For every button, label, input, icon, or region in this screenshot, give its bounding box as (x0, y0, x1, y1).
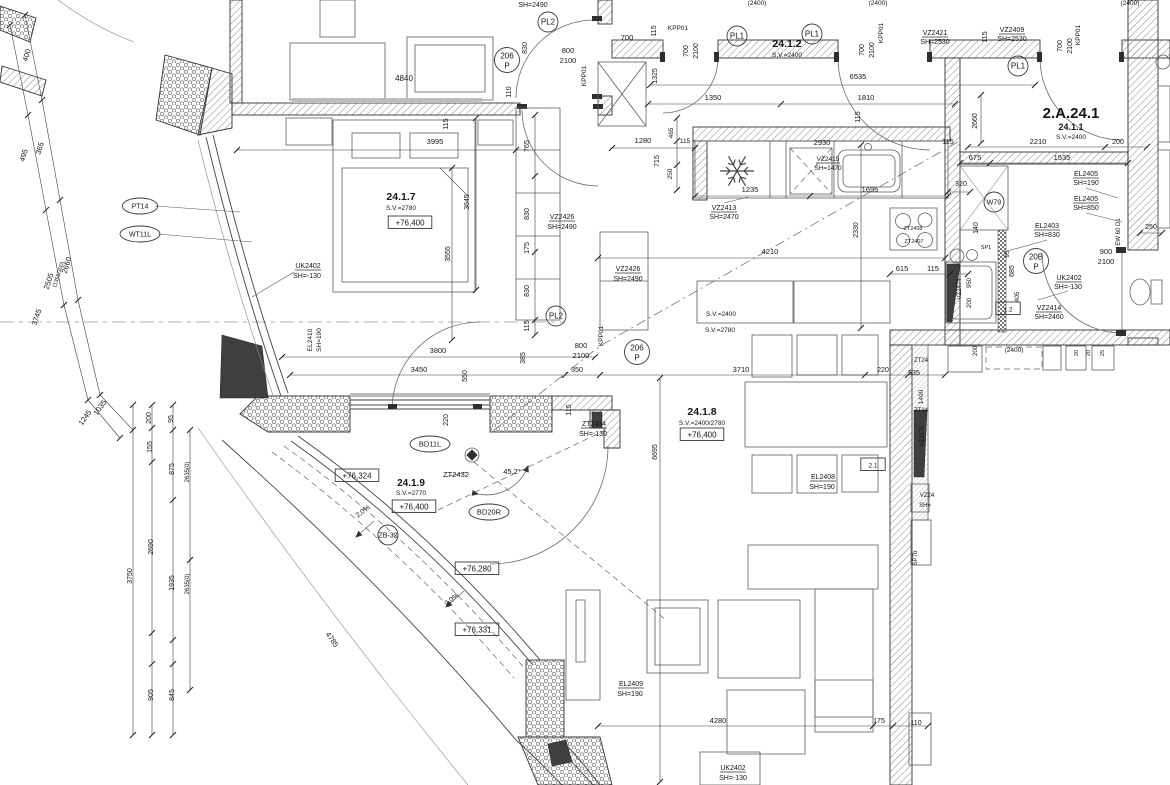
svg-text:PL2: PL2 (541, 18, 556, 27)
tag-label: KPP01 (598, 326, 605, 347)
svg-text:UK2402: UK2402 (1056, 275, 1081, 282)
tag-label: SH=2490 (547, 224, 576, 231)
tag-label: SH=-130 (719, 775, 747, 782)
tag-label: PL2 (538, 12, 558, 32)
svg-text:155: 155 (147, 441, 154, 453)
svg-text:385: 385 (520, 352, 527, 364)
svg-text:VZ2476: VZ2476 (920, 425, 926, 447)
tag-label: EL2408 (810, 474, 836, 481)
level-label: +76,400 (392, 500, 436, 513)
dim-label: 2100 (869, 42, 876, 58)
svg-text:2100: 2100 (869, 42, 876, 58)
dim-label: 115 (680, 138, 691, 145)
svg-text:PL1: PL1 (730, 32, 745, 41)
svg-text:ZT2434: ZT2434 (582, 421, 606, 428)
svg-text:206: 206 (630, 344, 644, 353)
dim-label: 2930 (814, 138, 831, 147)
dim-label: 1935 (169, 575, 176, 591)
svg-text:VZ2415: VZ2415 (817, 156, 840, 163)
svg-text:W79: W79 (987, 200, 1002, 207)
dim-label: 675 (969, 153, 982, 162)
svg-text:875: 875 (169, 463, 176, 475)
svg-text:+76,400: +76,400 (399, 503, 429, 512)
svg-text:S.V.=2400: S.V.=2400 (1056, 134, 1086, 141)
svg-text:2,0%: 2,0% (355, 504, 372, 519)
dim-label: 2100 (560, 56, 577, 65)
dim-label: 2100 (1067, 38, 1074, 54)
tag-label: 206P (495, 48, 520, 73)
svg-text:3745: 3745 (30, 308, 44, 327)
svg-text:EL2403: EL2403 (1035, 223, 1059, 230)
tag-label: 20BP (1024, 249, 1049, 274)
tag-label: VZ2476 (920, 425, 926, 447)
dim-label: 115 (524, 320, 531, 331)
dim-label: 220 (877, 367, 889, 374)
dim-label: 3745 (30, 308, 44, 327)
tag-label: SH=830 (1034, 232, 1060, 239)
dim-label: 2100 (693, 43, 700, 59)
svg-text:SH=2490: SH=2490 (613, 276, 642, 283)
dim-label: 715 (654, 155, 661, 167)
dim-label: 465 (668, 127, 675, 138)
tag-label: ZT2408 (904, 226, 923, 232)
svg-text:3995: 3995 (427, 137, 444, 146)
dim-label: 4840 (395, 74, 413, 83)
level-label: +76,331 (455, 623, 499, 636)
doors (388, 16, 1126, 564)
dim-label: 2660 (972, 113, 979, 129)
dining-table-icon (745, 335, 887, 493)
sv-label: S.V.=2780 (705, 327, 735, 334)
tag-label: UK2402 (1056, 275, 1082, 282)
level-label: +76,400 (680, 428, 724, 441)
svg-text:400: 400 (20, 48, 32, 63)
dim-label: 175 (873, 718, 885, 725)
dim-label: 700 (621, 33, 634, 42)
tv-bench-icon (566, 590, 600, 700)
dim-label: 250 (1145, 224, 1157, 231)
svg-text:(2400): (2400) (1005, 347, 1024, 354)
dim-label: 875 (169, 463, 176, 475)
slope-label: 2,0% (355, 504, 372, 519)
svg-text:SH=190: SH=190 (316, 328, 323, 352)
svg-text:BD20R: BD20R (477, 508, 502, 517)
dim-label: 3800 (430, 346, 447, 355)
furniture (286, 0, 1170, 785)
tag-label: KPP01 (878, 23, 885, 44)
svg-text:2.A.24.1: 2.A.24.1 (1043, 105, 1100, 122)
svg-text:3555: 3555 (445, 246, 452, 262)
dim-label: 700 (683, 45, 690, 57)
svg-text:465: 465 (668, 127, 675, 138)
tag-label: ZT2434 (581, 421, 607, 428)
svg-text:PL2: PL2 (549, 312, 564, 321)
svg-text:(2400): (2400) (1121, 0, 1140, 7)
floor-plan: 4840206PPL2SH=24908301108002100KPP017001… (0, 0, 1170, 785)
svg-text:140: 140 (973, 222, 980, 234)
tag-label: PL1 (1008, 56, 1028, 76)
toilet-icon (1130, 279, 1162, 305)
svg-text:2100: 2100 (573, 351, 590, 360)
svg-text:PL1: PL1 (805, 30, 820, 39)
svg-text:BD11L: BD11L (419, 440, 441, 449)
svg-text:20B: 20B (1029, 253, 1043, 262)
svg-text:3800: 3800 (430, 346, 447, 355)
dim-label: 800 (562, 46, 575, 55)
svg-text:115: 115 (855, 111, 862, 122)
dim-label: 1235 (742, 185, 759, 194)
svg-text:800: 800 (562, 46, 575, 55)
dim-label: 6695 (652, 444, 659, 460)
svg-text:S.V.=2770: S.V.=2770 (396, 490, 426, 497)
dim-label: 320 (955, 181, 967, 188)
tag-label: SP7b (913, 550, 919, 565)
svg-text:SH=190: SH=190 (1073, 180, 1099, 187)
dim-label: 3555 (445, 246, 452, 262)
svg-text:UK2402: UK2402 (295, 263, 320, 270)
svg-text:2100: 2100 (1098, 257, 1115, 266)
dim-label: 220 (443, 414, 450, 426)
svg-text:SH=-130: SH=-130 (719, 775, 747, 782)
svg-text:ZB-32: ZB-32 (378, 533, 397, 540)
tag-label: PL2 (546, 306, 566, 326)
svg-text:45,2°: 45,2° (503, 467, 521, 476)
dim-label: 115 (942, 139, 953, 146)
dim-label: 115 (982, 31, 989, 42)
dim-label: 350 (571, 367, 583, 374)
tag-label: EL2405 (1073, 196, 1099, 203)
tag-label: SH=2490 (613, 276, 642, 283)
dim-label: 700 (1057, 40, 1064, 52)
room-label: 24.1.1 (1058, 122, 1083, 132)
svg-text:2690: 2690 (148, 539, 155, 555)
svg-text:175: 175 (873, 718, 885, 725)
svg-text:S.V.=2780: S.V.=2780 (705, 327, 735, 334)
dim-label: 3450 (411, 365, 428, 374)
tag-label: EL2410 (307, 328, 314, 351)
tag-label: EL2409 (618, 681, 644, 688)
svg-text:115: 115 (443, 118, 450, 129)
svg-text:PL1: PL1 (1011, 62, 1026, 71)
svg-text:1400: 1400 (918, 389, 925, 404)
dim-label: 685 (1009, 265, 1016, 277)
svg-text:20: 20 (1074, 350, 1080, 356)
svg-text:SH=-130: SH=-130 (1054, 284, 1082, 291)
svg-text:VZ2421: VZ2421 (923, 30, 948, 37)
svg-text:KPP01: KPP01 (1075, 25, 1082, 46)
svg-text:250: 250 (1145, 224, 1157, 231)
svg-text:6695: 6695 (652, 444, 659, 460)
tag-label: SH=190 (1073, 180, 1099, 187)
svg-text:EL2410: EL2410 (307, 328, 314, 351)
svg-text:PT14: PT14 (132, 204, 149, 211)
svg-text:SH=-130: SH=-130 (293, 273, 321, 280)
svg-text:2930: 2930 (814, 138, 831, 147)
dim-label: 550 (462, 370, 469, 382)
tag-label: SH=2490 (518, 2, 547, 9)
svg-text:495: 495 (17, 148, 29, 163)
svg-text:800: 800 (575, 341, 588, 350)
dim-label: 250 (667, 168, 674, 179)
tag-label: EL2405 (1073, 171, 1099, 178)
svg-text:P: P (504, 62, 509, 71)
tag-label: SH=2470 (709, 214, 738, 221)
svg-text:1695: 1695 (862, 185, 879, 194)
dim-label: 700 (859, 44, 866, 56)
svg-text:SP1: SP1 (981, 245, 991, 251)
svg-text:115: 115 (524, 320, 531, 331)
tag-label: BD11L (410, 436, 450, 452)
dim-label: 3645 (464, 194, 471, 210)
svg-text:SP7b: SP7b (913, 550, 919, 565)
svg-text:685: 685 (1009, 265, 1016, 277)
svg-text:200: 200 (973, 345, 979, 356)
dim-label: 1810 (858, 93, 875, 102)
dim-label: 155 (147, 441, 154, 453)
tag-label: KPP01 (581, 66, 588, 87)
svg-text:1280: 1280 (635, 136, 652, 145)
svg-text:EL2409: EL2409 (619, 681, 643, 688)
dim-label: 900 (1100, 247, 1113, 256)
svg-text:700: 700 (1057, 40, 1064, 52)
svg-text:4785: 4785 (324, 630, 341, 649)
svg-text:25: 25 (1100, 350, 1106, 356)
tag-label: SH=190 (316, 328, 323, 352)
svg-text:S.V.=2780: S.V.=2780 (386, 205, 416, 212)
svg-text:SH=2470: SH=2470 (709, 214, 738, 221)
svg-text:ZT24: ZT24 (914, 408, 929, 414)
tag-label: VZ2426 (615, 266, 641, 273)
tag-label: VZ2409 (999, 27, 1025, 34)
svg-text:SH=2490: SH=2490 (547, 224, 576, 231)
svg-text:2100: 2100 (693, 43, 700, 59)
svg-text:950: 950 (967, 277, 973, 288)
dim-label: 495 (17, 148, 29, 163)
svg-text:830: 830 (524, 208, 531, 220)
dim-label: (2400) (869, 0, 888, 7)
floor-plan-canvas: 4840206PPL2SH=24908301108002100KPP017001… (0, 0, 1170, 785)
dim-label: 2635(0) (185, 462, 191, 483)
walls (0, 0, 1170, 785)
svg-text:845: 845 (169, 689, 176, 701)
svg-text:1235: 1235 (742, 185, 759, 194)
svg-text:2.1: 2.1 (868, 463, 877, 470)
dim-label: 110 (506, 86, 513, 97)
dim-label: 20 (1074, 350, 1080, 356)
fridge-icon (720, 154, 754, 187)
svg-text:115: 115 (927, 264, 939, 273)
tag-label: KPP01 (1075, 25, 1082, 46)
svg-text:115: 115 (651, 25, 658, 36)
svg-text:24.1.2: 24.1.2 (772, 38, 801, 50)
svg-text:VZ2414: VZ2414 (1037, 305, 1062, 312)
svg-text:SH=2460: SH=2460 (1034, 314, 1063, 321)
tag-label: KPP01 (668, 25, 689, 32)
svg-text:830: 830 (524, 285, 531, 297)
svg-text:250: 250 (667, 168, 674, 179)
svg-text:115: 115 (942, 139, 953, 146)
svg-text:WT11L: WT11L (129, 232, 151, 239)
svg-text:115: 115 (680, 138, 691, 145)
tag-label: SH=-130 (1054, 284, 1082, 291)
dim-label: 905 (148, 689, 155, 701)
svg-text:200: 200 (1112, 139, 1124, 146)
svg-text:KPP01: KPP01 (581, 66, 588, 87)
tag-label: SH= (919, 503, 931, 509)
tag-label: VZ24 (920, 493, 935, 499)
svg-text:405: 405 (1014, 291, 1021, 302)
svg-text:1350: 1350 (705, 93, 722, 102)
dim-label: 115 (927, 264, 939, 273)
svg-text:550: 550 (462, 370, 469, 382)
dim-label: 1280 (635, 136, 652, 145)
svg-text:175: 175 (524, 242, 531, 254)
room-label: 24.1.8 (687, 406, 716, 418)
svg-text:2330: 2330 (853, 222, 860, 238)
tag-label: SH=190 (617, 691, 643, 698)
dim-label: 6535 (850, 72, 867, 81)
svg-text:P: P (1033, 263, 1038, 272)
svg-text:SH=190: SH=190 (809, 484, 835, 491)
svg-text:715: 715 (654, 155, 661, 167)
svg-text:2,0%: 2,0% (444, 592, 461, 607)
dim-label: 110 (910, 720, 921, 727)
ceiling-zone-lines (356, 142, 958, 620)
tag-label: SH=2460 (1034, 314, 1063, 321)
svg-text:24.1.9: 24.1.9 (397, 478, 425, 489)
svg-text:VZ2426: VZ2426 (550, 214, 575, 221)
dim-label: 615 (896, 264, 909, 273)
slope-label: 2,0% (444, 592, 461, 607)
dim-label: 1350 (705, 93, 722, 102)
dim-label: 2100 (573, 351, 590, 360)
level-label: +76,400 (388, 216, 432, 229)
svg-text:1535: 1535 (1054, 153, 1071, 162)
dim-label: 765 (524, 140, 531, 152)
svg-text:S.V.=2400: S.V.=2400 (772, 52, 802, 59)
svg-text:900: 900 (1100, 247, 1113, 256)
dim-label: 25 (1100, 350, 1106, 356)
svg-text:SH=830: SH=830 (1034, 232, 1060, 239)
svg-text:S.V.=2400/2780: S.V.=2400/2780 (679, 420, 726, 427)
svg-text:2635(0): 2635(0) (185, 574, 191, 595)
tag-label: SH=850 (1073, 205, 1099, 212)
sv-label: S.V.=2770 (396, 490, 426, 497)
svg-text:700: 700 (683, 45, 690, 57)
svg-text:320: 320 (955, 181, 967, 188)
svg-text:3750: 3750 (127, 568, 134, 584)
svg-text:95: 95 (1004, 250, 1011, 258)
dim-label: 115 (566, 404, 573, 415)
svg-text:SH=850: SH=850 (1073, 205, 1099, 212)
dim-label: 95 (168, 415, 175, 423)
sv-label: S.V.=2400/2780 (679, 420, 726, 427)
svg-text:SH=1470: SH=1470 (814, 165, 842, 172)
tag-label: EL2403 (1034, 223, 1060, 230)
svg-text:1935: 1935 (169, 575, 176, 591)
svg-text:+76,324: +76,324 (342, 472, 372, 481)
sv-label: S.V.=2400 (772, 52, 802, 59)
dim-label: 400 (20, 48, 32, 63)
svg-text:3645: 3645 (464, 194, 471, 210)
tag-label: 2.1 (861, 458, 885, 471)
svg-text:ZT24: ZT24 (914, 358, 929, 364)
svg-text:200: 200 (146, 412, 153, 424)
room-label: 24.1.2 (772, 38, 801, 50)
tag-label: SH=2530 (997, 36, 1026, 43)
svg-text:20: 20 (1086, 350, 1092, 356)
sv-label: S.V.=2400 (706, 311, 736, 318)
svg-text:2635(0): 2635(0) (185, 462, 191, 483)
svg-text:350: 350 (571, 367, 583, 374)
dim-label: 200 (146, 412, 153, 424)
svg-text:6535: 6535 (850, 72, 867, 81)
svg-text:SH=2530: SH=2530 (920, 39, 949, 46)
dim-label: 20 (1086, 350, 1092, 356)
dim-label: 950 (967, 277, 973, 288)
dim-label: 4210 (762, 247, 779, 256)
svg-text:(2400): (2400) (748, 0, 767, 7)
dim-label: 1325 (652, 68, 659, 84)
svg-text:VZ2413: VZ2413 (712, 205, 737, 212)
tag-label: W79 (984, 192, 1004, 212)
svg-text:2210: 2210 (1030, 137, 1047, 146)
svg-text:905: 905 (148, 689, 155, 701)
svg-text:EL2405: EL2405 (1074, 171, 1098, 178)
svg-text:220: 220 (877, 367, 889, 374)
svg-text:SH=: SH= (919, 503, 931, 509)
svg-text:4280: 4280 (710, 716, 727, 725)
dim-label: 2100 (1098, 257, 1115, 266)
svg-text:ZT2407: ZT2407 (905, 239, 924, 245)
dim-label: 4280 (710, 716, 727, 725)
svg-text:1.2: 1.2 (1003, 307, 1012, 314)
svg-text:SH=190: SH=190 (617, 691, 643, 698)
pivot-icon (465, 448, 479, 462)
svg-text:765: 765 (524, 140, 531, 152)
svg-text:1325: 1325 (652, 68, 659, 84)
svg-text:700: 700 (621, 33, 634, 42)
svg-text:2660: 2660 (972, 113, 979, 129)
dim-label: 3995 (427, 137, 444, 146)
angle-label: 45,2° (503, 467, 521, 476)
dim-label: 115 (443, 118, 450, 129)
tag-label: VZ2421 (922, 30, 948, 37)
dim-label: 1400 (918, 389, 925, 404)
svg-text:24.1.1: 24.1.1 (1058, 122, 1083, 132)
dim-label: 535 (908, 370, 920, 377)
dim-label: 800 (575, 341, 588, 350)
dim-label: 845 (169, 689, 176, 701)
svg-text:675: 675 (969, 153, 982, 162)
tag-label: SH=190 (809, 484, 835, 491)
dim-label: 115 (651, 25, 658, 36)
dim-label: 2690 (148, 539, 155, 555)
svg-text:115: 115 (982, 31, 989, 42)
dim-label: 200 (973, 345, 979, 356)
svg-text:4210: 4210 (762, 247, 779, 256)
svg-text:KPP01: KPP01 (598, 326, 605, 347)
dim-label: 830 (524, 208, 531, 220)
dim-label: (2400) (1005, 347, 1024, 354)
dim-label: 140 (973, 222, 980, 234)
svg-text:3450: 3450 (411, 365, 428, 374)
tag-label: ZT2432 (443, 470, 469, 479)
svg-text:615: 615 (896, 264, 909, 273)
sofa-icon (748, 545, 878, 732)
svg-text:4840: 4840 (395, 74, 413, 83)
tag-label: VZ2474 (957, 278, 963, 300)
